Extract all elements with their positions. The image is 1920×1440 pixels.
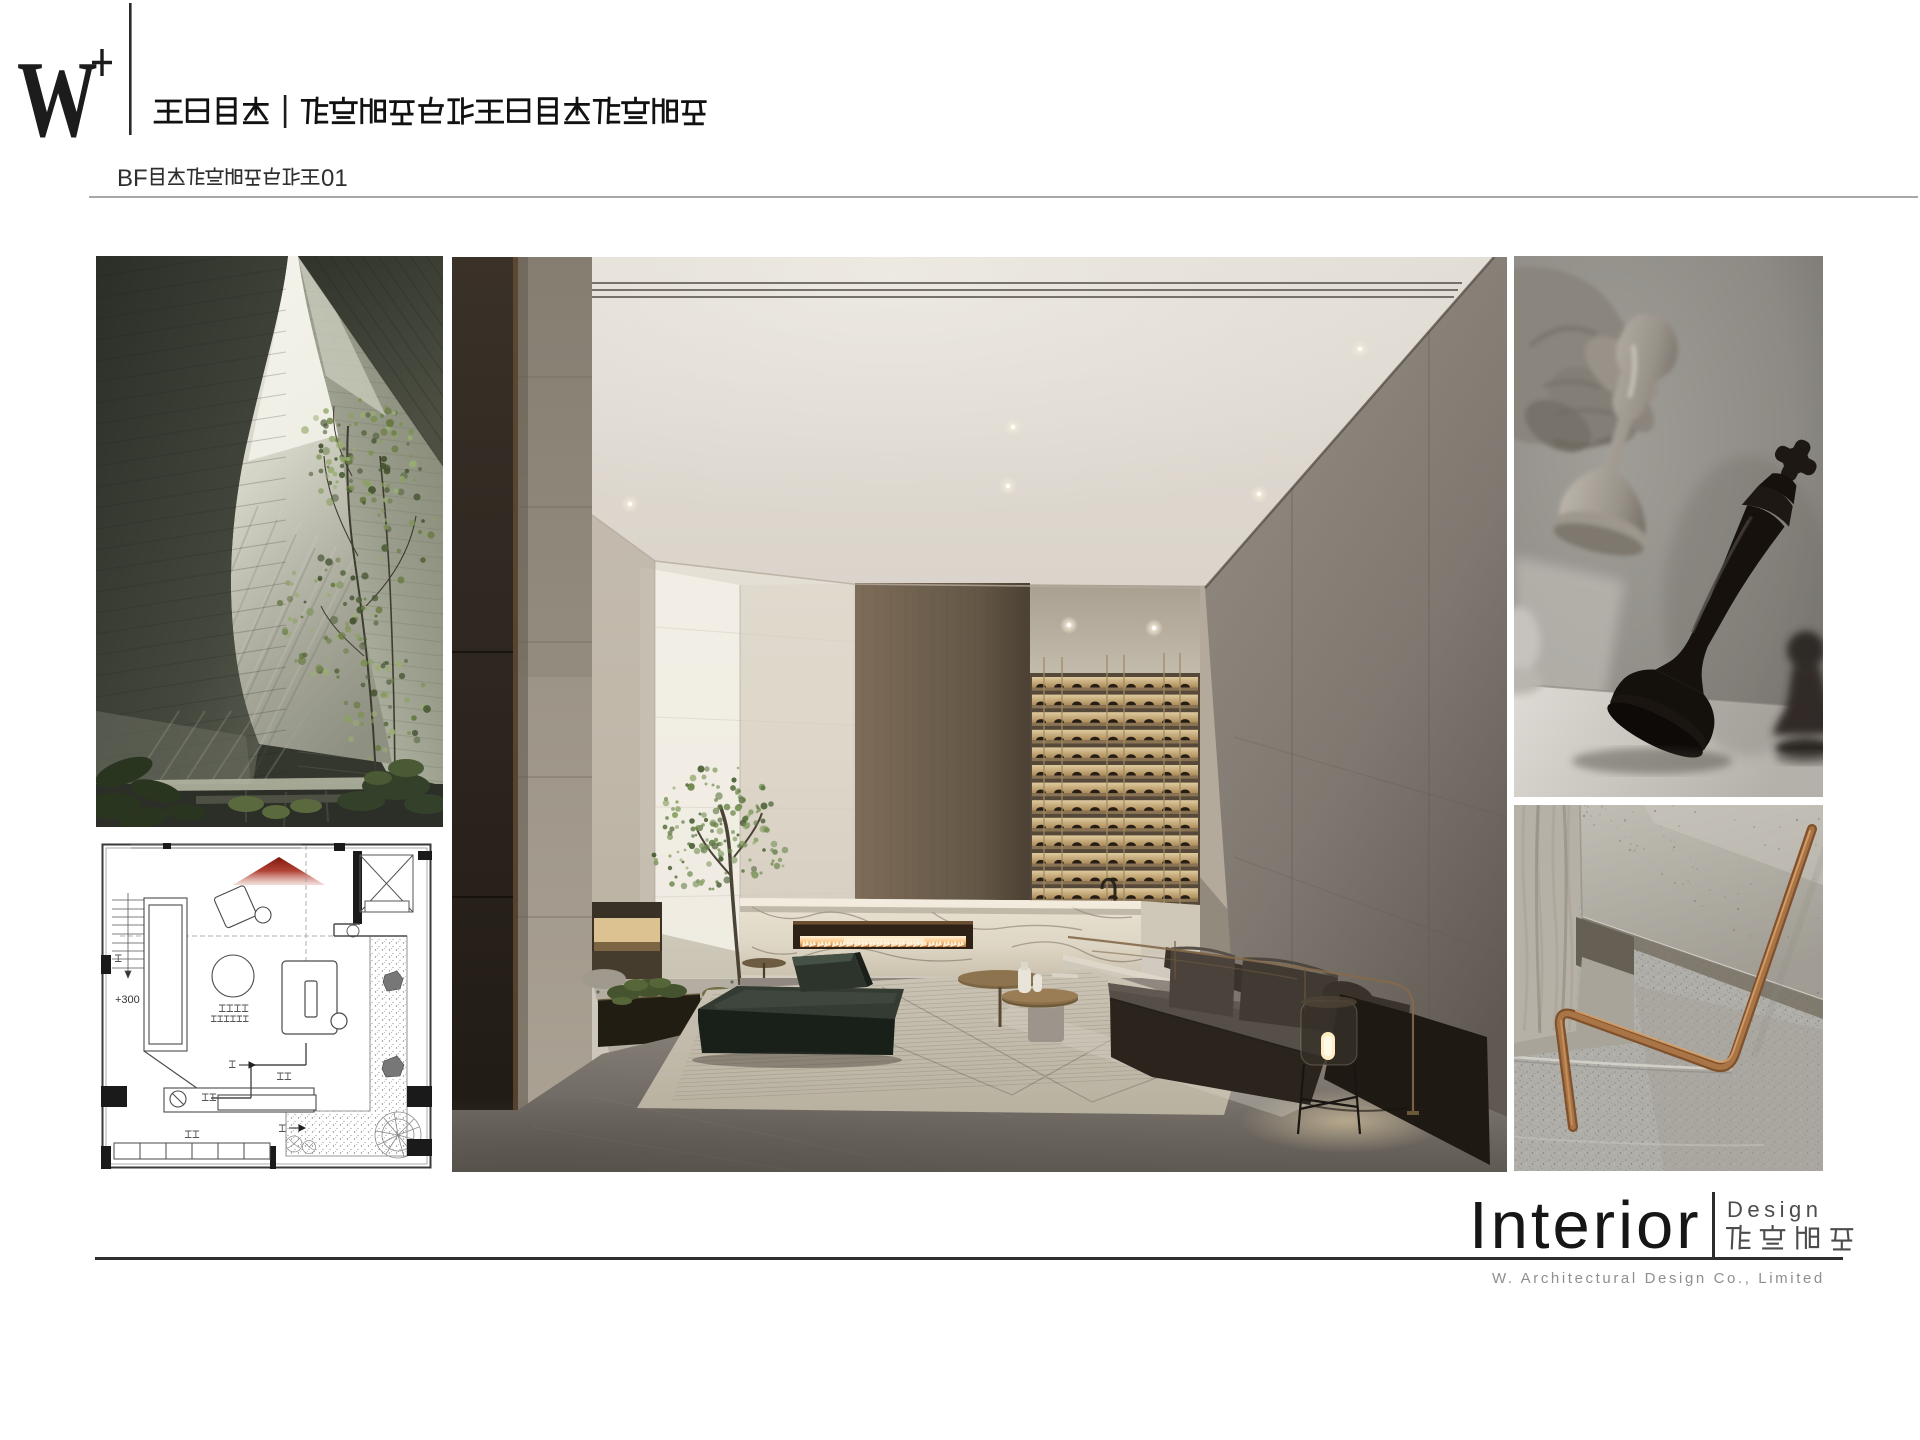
svg-text:BF: BF [117,165,148,192]
svg-text:+300: +300 [115,994,140,1006]
svg-text:01: 01 [321,165,348,192]
